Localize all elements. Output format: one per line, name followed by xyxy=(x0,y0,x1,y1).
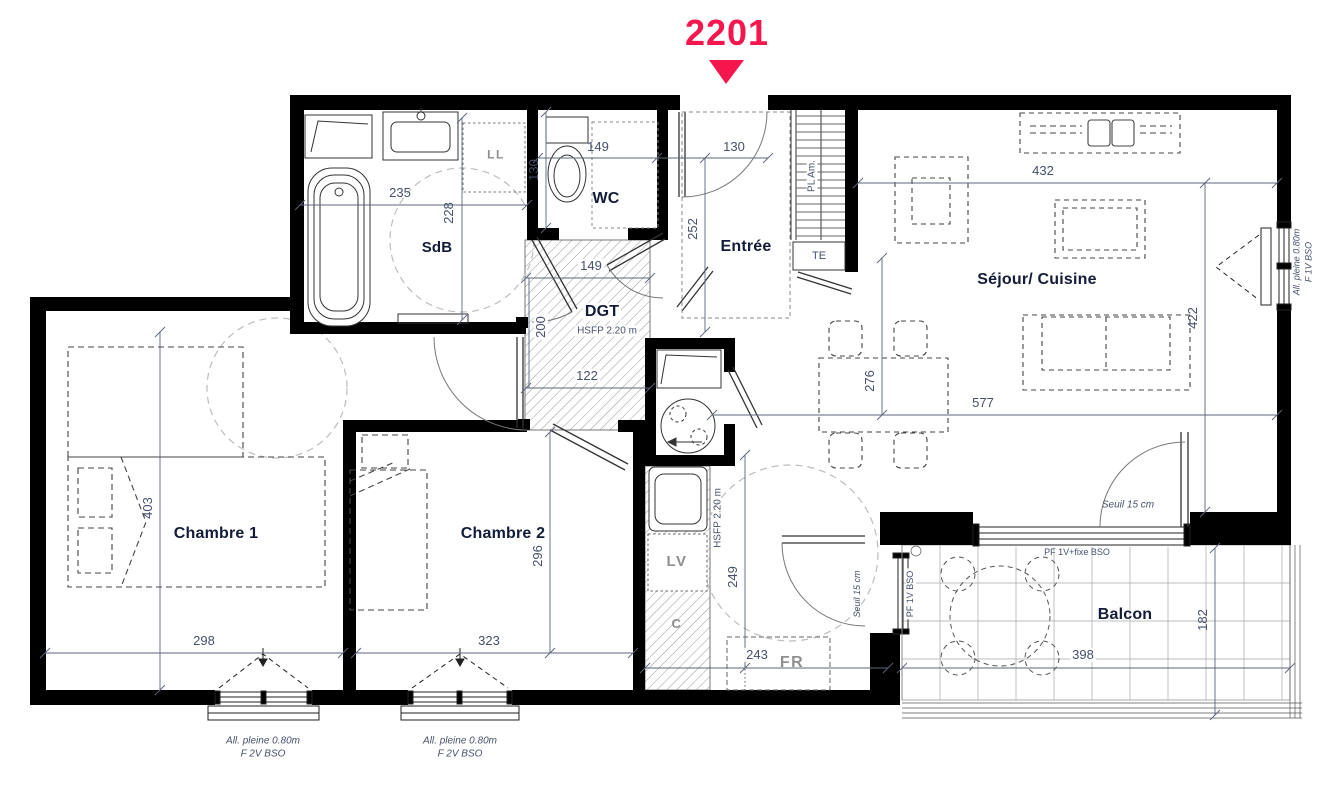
washer-label: LL xyxy=(487,148,505,161)
room-label-balcon: Balcon xyxy=(1098,606,1153,624)
dim-kitchen-height: 249 xyxy=(726,566,740,588)
dim-dining-height: 276 xyxy=(863,370,877,392)
dim-entree-width: 130 xyxy=(723,140,745,154)
right-window-note: All. pleine 0.80m F 1V BSO xyxy=(1291,229,1314,296)
dishwasher-label: LV xyxy=(666,554,687,571)
room-label-chambre1: Chambre 1 xyxy=(174,525,259,543)
dim-sdb-width: 235 xyxy=(389,186,411,200)
room-label-sdb: SdB xyxy=(422,240,453,257)
dim-entree-height: 252 xyxy=(686,218,700,240)
window-ch2-note-line2: F 2V BSO xyxy=(438,749,483,760)
placard-label: PL Am. xyxy=(807,158,818,194)
dim-sejour-right: 422 xyxy=(1186,307,1200,329)
dim-chambre1-height: 403 xyxy=(141,497,155,519)
fridge-label: FR xyxy=(780,654,804,672)
kitchen-height-note: HSFP 2.20 m xyxy=(713,488,724,548)
seuil-cuisine-note: Seuil 15 cm xyxy=(853,570,863,617)
dim-sejour-length: 577 xyxy=(972,396,994,410)
unit-number: 2201 xyxy=(685,13,769,53)
dim-wc-height: 130 xyxy=(527,159,541,181)
dim-sejour-top: 432 xyxy=(1032,164,1054,178)
floor-plan-drawing xyxy=(0,0,1321,800)
room-label-wc: WC xyxy=(592,190,619,208)
window-ch1-note-line1: All. pleine 0.80m xyxy=(226,736,300,747)
dim-wc-width: 149 xyxy=(587,140,609,154)
dim-chambre2-width: 323 xyxy=(478,634,500,648)
cooker-label: C xyxy=(672,617,683,631)
dim-chambre2-height: 296 xyxy=(531,545,545,567)
bedroom-furniture xyxy=(68,347,427,610)
room-label-chambre2: Chambre 2 xyxy=(461,525,546,543)
dim-dgt-bottom: 122 xyxy=(574,369,600,383)
dim-chambre1-width: 298 xyxy=(193,634,215,648)
window-ch1-note-line2: F 2V BSO xyxy=(241,749,286,760)
pf-balcon-note: PF 1V BSO xyxy=(906,569,916,620)
seuil-sejour-note: Seuil 15 cm xyxy=(1102,500,1154,511)
balcony-table-chairs xyxy=(941,557,1059,675)
dim-sdb-height: 228 xyxy=(442,202,456,224)
dim-balcon-width: 398 xyxy=(1070,648,1096,662)
dim-dgt-left: 200 xyxy=(534,314,548,340)
room-label-sejour: Séjour/ Cuisine xyxy=(977,271,1096,289)
dim-dgt-top: 149 xyxy=(578,259,604,273)
dgt-height-note: HSFP 2.20 m xyxy=(575,326,639,337)
right-window-note-line1: All. pleine 0.80m xyxy=(1291,229,1303,296)
te-label: TE xyxy=(812,250,826,262)
right-window-note-line2: F 1V BSO xyxy=(1303,229,1315,296)
floorplan-page: 2201 SdB WC Entrée DGT HSFP 2.20 m Séjou… xyxy=(0,0,1321,800)
room-label-dgt: DGT xyxy=(583,303,621,321)
balcony-structure xyxy=(902,545,1302,718)
room-label-entree: Entrée xyxy=(721,238,772,256)
dim-kitchen-width: 243 xyxy=(744,648,770,662)
pf-fixe-note: PF 1V+fixe BSO xyxy=(1044,548,1110,558)
unit-pointer-triangle xyxy=(709,60,744,84)
window-ch2-note-line1: All. pleine 0.80m xyxy=(423,736,497,747)
dim-balcon-height: 182 xyxy=(1196,609,1210,631)
